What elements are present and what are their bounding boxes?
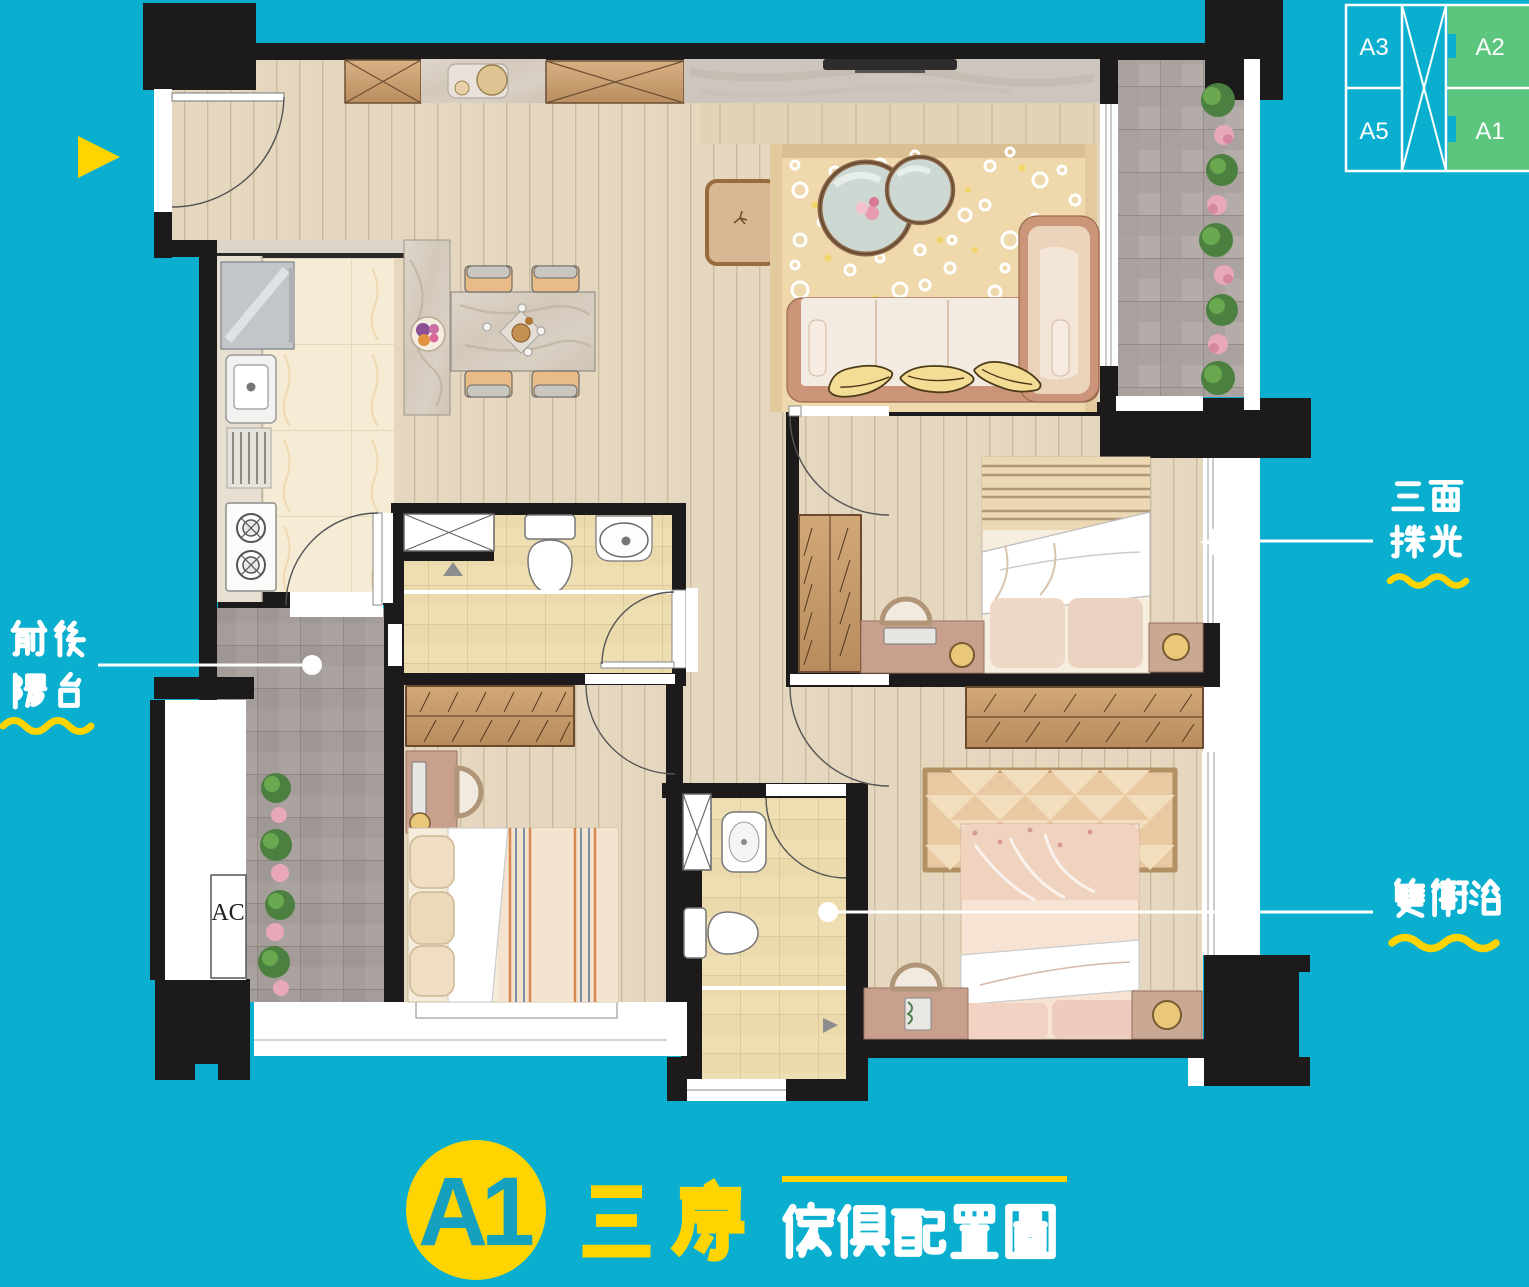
svg-text:A1: A1 [1475, 118, 1504, 145]
svg-text:A1: A1 [418, 1157, 533, 1266]
svg-text:A5: A5 [1359, 118, 1388, 145]
svg-text:A3: A3 [1359, 34, 1388, 61]
svg-text:A2: A2 [1475, 34, 1504, 61]
svg-text:AC: AC [211, 900, 244, 926]
